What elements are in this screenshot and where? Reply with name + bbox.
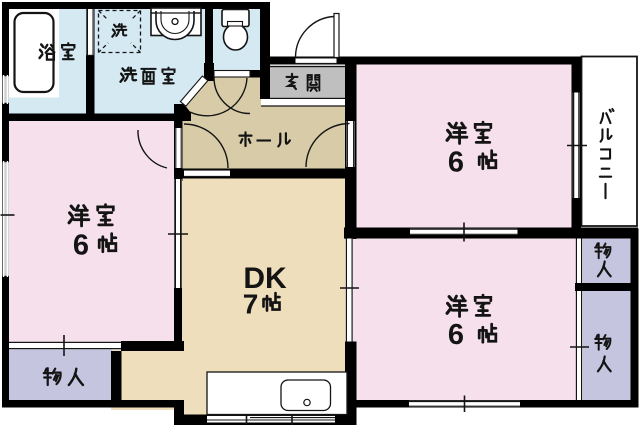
svg-text:7: 7 — [243, 289, 259, 320]
svg-text:6: 6 — [448, 147, 464, 179]
svg-text:6: 6 — [73, 230, 89, 262]
svg-text:6: 6 — [448, 319, 464, 351]
